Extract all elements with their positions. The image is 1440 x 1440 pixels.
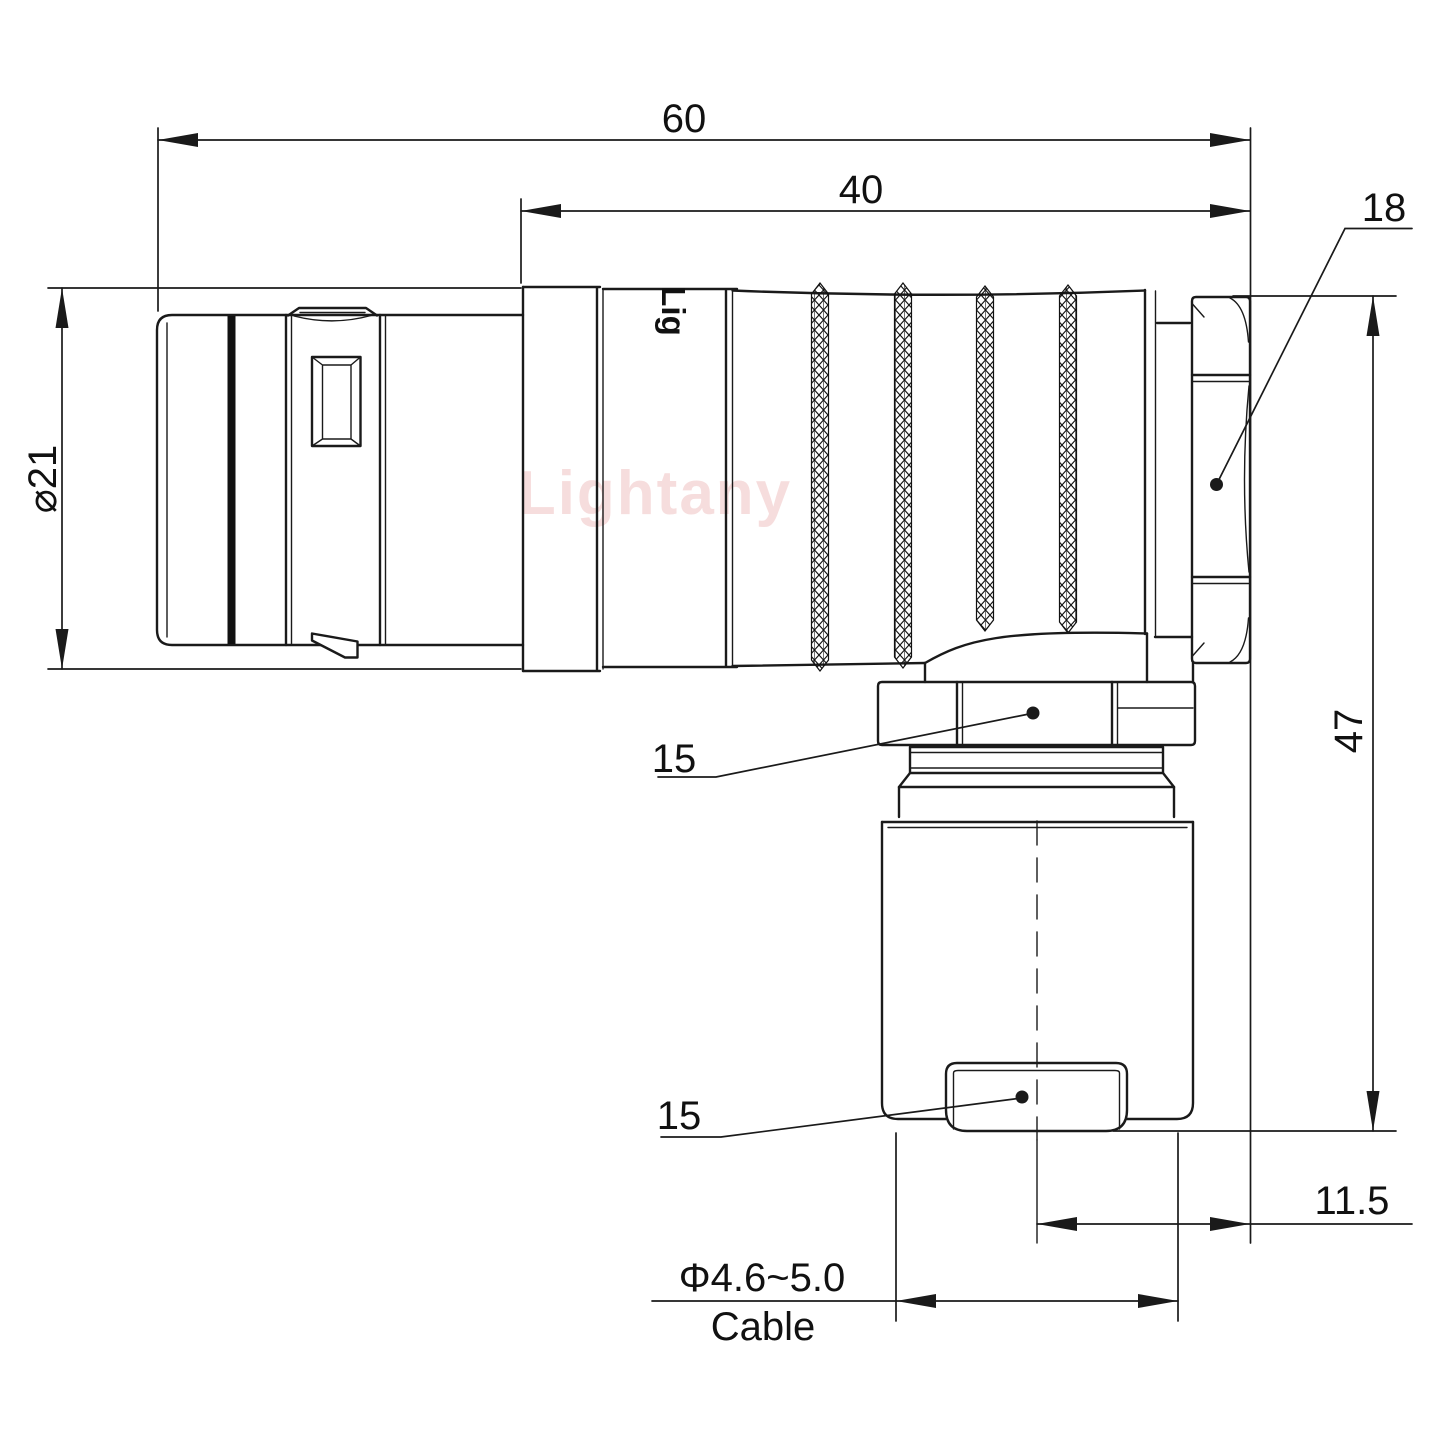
sleeve-dark-band bbox=[228, 316, 236, 644]
leader-dot bbox=[1027, 707, 1040, 720]
leader-elbow-nut: 15 bbox=[652, 707, 1040, 782]
dim-cable-diameter-text: Φ4.6~5.0 bbox=[679, 1256, 845, 1300]
connector-drawing: Lightany bbox=[0, 0, 1440, 1440]
watermark-text: Lightany bbox=[518, 459, 792, 528]
latch-window bbox=[312, 357, 361, 446]
cable-tube bbox=[882, 821, 1193, 1243]
engraving-text: Lig bbox=[655, 286, 692, 335]
knurl-strip bbox=[977, 286, 994, 631]
dim-overall-height-text: 47 bbox=[1327, 709, 1371, 754]
dim-body-length: 40 bbox=[521, 168, 1250, 283]
dim-back-nut-text: 18 bbox=[1362, 186, 1407, 230]
technical-drawing-page: Lightany bbox=[0, 0, 1440, 1440]
dim-cable-clamp-text: 15 bbox=[657, 1094, 702, 1138]
knurl-strip bbox=[812, 283, 829, 671]
knurl-strip bbox=[895, 283, 912, 668]
leader-dot bbox=[1016, 1091, 1029, 1104]
leader-dot bbox=[1210, 478, 1223, 491]
dim-bend-offset: 11.5 bbox=[1037, 1179, 1412, 1231]
dim-cable: Φ4.6~5.0 Cable bbox=[652, 1133, 1178, 1349]
knurl-strip bbox=[1060, 285, 1077, 633]
dim-bend-offset-text: 11.5 bbox=[1315, 1179, 1390, 1223]
dim-body-length-text: 40 bbox=[839, 168, 884, 212]
dim-outer-diameter-text: ⌀21 bbox=[21, 445, 65, 514]
leader-back-nut: 18 bbox=[1210, 186, 1412, 491]
dim-elbow-nut-text: 15 bbox=[652, 737, 697, 781]
elbow-body bbox=[878, 633, 1195, 745]
gland-stack bbox=[899, 747, 1174, 817]
dim-outer-diameter: ⌀21 bbox=[21, 288, 521, 669]
dim-overall-length-text: 60 bbox=[662, 97, 707, 141]
front-sleeve bbox=[157, 308, 523, 658]
engraving: Lig bbox=[655, 286, 692, 335]
dim-cable-label-text: Cable bbox=[711, 1305, 816, 1349]
